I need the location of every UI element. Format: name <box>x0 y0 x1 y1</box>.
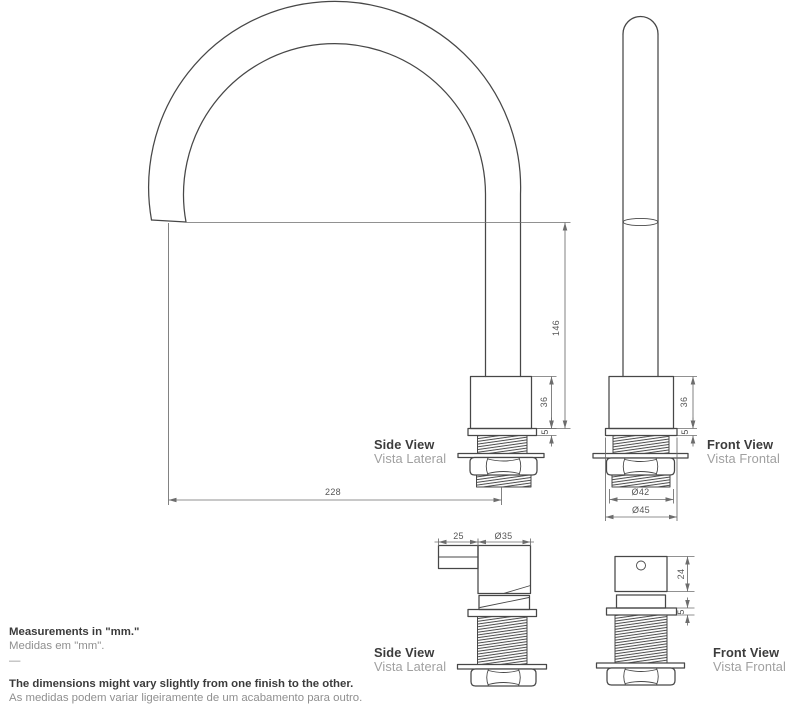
spout-front-view-title: Front View <box>707 438 780 452</box>
spout-side-view-drawing <box>149 1 544 487</box>
note-variance-pt: As medidas podem variar ligeiramente de … <box>9 692 362 704</box>
handle-side-view-label: Side View Vista Lateral <box>374 646 446 674</box>
spout-front-washer <box>593 454 688 459</box>
dim-value-5-side: 5 <box>540 429 550 434</box>
handle-side-body <box>478 546 531 594</box>
dim-value-36-front: 36 <box>679 397 689 408</box>
spout-front-view-subtitle: Vista Frontal <box>707 452 780 466</box>
dim-value-36-side: 36 <box>539 397 549 408</box>
spout-side-view-label: Side View Vista Lateral <box>374 438 446 466</box>
handle-front-setscrew <box>637 561 646 570</box>
drawing-canvas <box>0 0 800 711</box>
dim-value-25: 25 <box>453 531 464 541</box>
handle-front-body <box>615 557 667 592</box>
spout-front-hex-nut <box>607 458 675 475</box>
dim-value-24: 24 <box>676 569 686 580</box>
note-units-en: Measurements in "mm." <box>9 626 139 638</box>
spout-side-thread-upper <box>478 436 528 454</box>
dim-value-228: 228 <box>325 487 341 497</box>
dim-value-dia45: Ø45 <box>632 505 650 515</box>
note-variance-en: The dimensions might vary slightly from … <box>9 678 353 690</box>
spout-front-body <box>609 377 674 429</box>
spout-outer-curve <box>149 1 521 376</box>
spout-front-tube <box>623 34 658 377</box>
handle-front-view-subtitle: Vista Frontal <box>713 660 786 674</box>
handle-side-view-subtitle: Vista Lateral <box>374 660 446 674</box>
spout-side-thread-lower <box>477 475 532 487</box>
handle-front-view-title: Front View <box>713 646 786 660</box>
handle-front-flange <box>607 608 677 615</box>
handle-side-view-drawing <box>439 546 547 687</box>
dim-spout-reach-228 <box>169 223 502 505</box>
handle-front-base <box>617 595 666 608</box>
spout-front-thread-lower <box>612 475 670 487</box>
spout-side-flange <box>468 429 537 436</box>
handle-front-thread <box>615 615 667 663</box>
handle-side-flange <box>468 610 537 617</box>
spout-side-body <box>471 377 532 429</box>
dim-spout-height-146 <box>187 223 571 429</box>
dim-value-146: 146 <box>551 320 561 336</box>
handle-front-washer <box>597 663 685 668</box>
handle-side-thread <box>478 617 528 665</box>
spout-aerator-line <box>623 218 658 225</box>
dim-value-5-front: 5 <box>680 429 690 434</box>
note-units-pt: Medidas em "mm". <box>9 640 104 652</box>
handle-side-base-slant <box>480 598 529 608</box>
faucet-technical-drawing-page: 146 228 36 5 36 5 Ø42 Ø45 25 Ø35 24 5 Si… <box>0 0 800 711</box>
spout-side-view-subtitle: Vista Lateral <box>374 452 446 466</box>
handle-front-hex-nut <box>607 668 675 685</box>
handle-dimension-lines <box>435 539 695 626</box>
dim-value-dia35: Ø35 <box>495 531 513 541</box>
spout-front-view-label: Front View Vista Frontal <box>707 438 780 466</box>
dim-value-dia42: Ø42 <box>632 487 650 497</box>
spout-front-view-drawing <box>593 17 688 488</box>
spout-side-hex-nut <box>470 458 537 476</box>
note-divider: — <box>9 655 20 667</box>
spout-side-view-title: Side View <box>374 438 446 452</box>
spout-front-flange <box>606 429 678 436</box>
spout-inner-curve <box>184 44 486 377</box>
spout-outlet-tip <box>152 220 187 222</box>
handle-side-hex-nut <box>471 669 536 686</box>
handle-front-view-drawing <box>597 557 685 686</box>
spout-front-tube-cap <box>623 17 658 35</box>
handle-front-view-label: Front View Vista Frontal <box>713 646 786 674</box>
handle-side-body-slant <box>504 586 531 594</box>
dim-value-5-handle: 5 <box>676 609 686 614</box>
spout-front-thread-upper <box>613 436 669 454</box>
handle-side-washer <box>458 665 547 670</box>
handle-side-view-title: Side View <box>374 646 446 660</box>
